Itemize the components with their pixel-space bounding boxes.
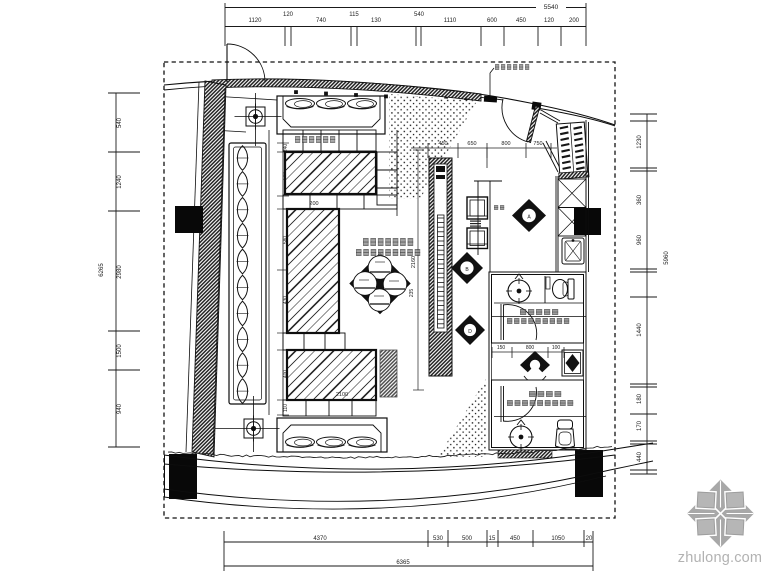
svg-text:360: 360: [637, 194, 643, 205]
svg-text:130: 130: [371, 18, 382, 24]
svg-text:1440: 1440: [637, 323, 643, 337]
svg-text:5540: 5540: [544, 4, 559, 11]
svg-text:600: 600: [487, 18, 498, 24]
svg-text:2980: 2980: [117, 265, 123, 279]
svg-text:180: 180: [637, 393, 643, 404]
svg-text:1500: 1500: [117, 344, 123, 358]
svg-text:115: 115: [349, 12, 359, 18]
svg-text:2100: 2100: [336, 392, 348, 398]
svg-text:540: 540: [117, 117, 123, 128]
svg-text:1120: 1120: [249, 18, 263, 24]
svg-text:800: 800: [526, 345, 535, 351]
svg-text:940: 940: [117, 403, 123, 414]
svg-text:1230: 1230: [637, 135, 643, 149]
svg-text:1110: 1110: [444, 18, 457, 24]
svg-text:4370: 4370: [313, 536, 327, 542]
svg-text:D: D: [468, 329, 472, 335]
svg-text:200: 200: [569, 18, 580, 24]
svg-text:6365: 6365: [396, 560, 410, 566]
svg-text:1240: 1240: [117, 175, 123, 189]
svg-text:750: 750: [533, 141, 542, 147]
svg-text:440: 440: [637, 451, 643, 462]
svg-text:100: 100: [552, 345, 561, 351]
svg-text:110: 110: [283, 404, 289, 412]
svg-text:650: 650: [467, 141, 476, 147]
svg-text:120: 120: [544, 18, 555, 24]
svg-text:540: 540: [414, 12, 425, 18]
svg-text:530: 530: [433, 536, 444, 542]
svg-text:5960: 5960: [664, 251, 670, 265]
svg-text:150: 150: [497, 345, 506, 351]
svg-text:235: 235: [409, 289, 415, 298]
svg-text:6265: 6265: [99, 263, 105, 277]
svg-text:500: 500: [462, 536, 473, 542]
svg-text:960: 960: [637, 234, 643, 245]
svg-text:740: 740: [316, 18, 327, 24]
svg-text:1050: 1050: [551, 536, 565, 542]
svg-text:450: 450: [438, 141, 447, 147]
svg-text:200: 200: [309, 201, 318, 207]
svg-text:15: 15: [489, 536, 496, 542]
svg-text:450: 450: [516, 18, 527, 24]
svg-text:20: 20: [586, 536, 593, 542]
svg-text:170: 170: [637, 420, 643, 431]
svg-text:2160: 2160: [411, 256, 417, 268]
svg-text:800: 800: [501, 141, 510, 147]
svg-text:450: 450: [510, 536, 521, 542]
svg-text:120: 120: [283, 12, 294, 18]
svg-text:zhulong.com: zhulong.com: [678, 550, 762, 566]
